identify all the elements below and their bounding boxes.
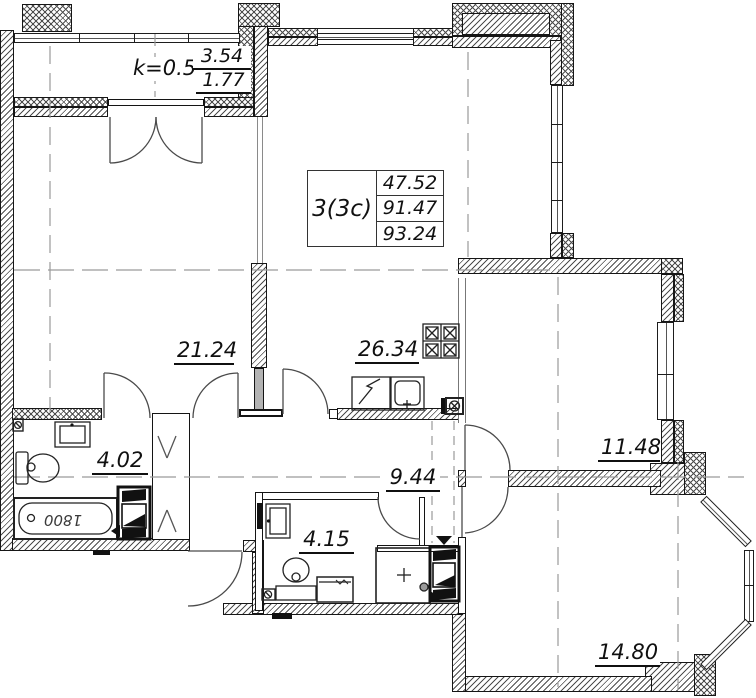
door-jamb	[329, 409, 338, 419]
door-opening-marker	[436, 536, 452, 545]
bedroom-right-door-arc	[465, 425, 510, 470]
wall	[674, 420, 684, 463]
partition-wall	[458, 278, 466, 423]
threshold-mark	[272, 613, 292, 619]
toilet-icon	[276, 558, 316, 600]
wall	[14, 107, 108, 117]
bathroom2-door-arc	[378, 497, 420, 539]
window	[551, 85, 563, 233]
vent-shaft	[152, 413, 190, 540]
duct	[257, 503, 263, 529]
wall	[413, 37, 453, 46]
partition-wall	[377, 545, 463, 552]
vent-grille-icon	[13, 419, 23, 431]
wall	[337, 408, 463, 420]
water-heater-icon	[430, 547, 459, 601]
wall	[14, 97, 108, 107]
wall	[452, 36, 561, 48]
wall	[458, 470, 466, 487]
room-label-hallway: 9.44	[386, 466, 440, 492]
balcony-coefficient-label: k=0.5	[130, 57, 194, 81]
bay-window	[700, 496, 752, 548]
room-label-bedroom-bottom: 14.80	[595, 641, 660, 667]
wall	[561, 3, 574, 86]
room-label-bathroom2: 4.15	[299, 528, 354, 554]
partition-wall	[258, 492, 379, 500]
wall	[254, 26, 268, 117]
bathtub-dimension-label: 1800	[36, 509, 90, 529]
wall	[0, 30, 14, 551]
partition-wall	[458, 537, 466, 614]
apartment-info-table: 3(3c) 47.52 91.47 93.24	[307, 170, 444, 247]
wall	[462, 13, 550, 35]
wall	[268, 37, 318, 46]
door-sill	[108, 99, 204, 106]
wall	[684, 452, 706, 495]
window	[14, 33, 240, 43]
wall	[674, 274, 684, 322]
sink-icon	[55, 422, 90, 447]
partition-wall	[239, 409, 283, 417]
wall	[204, 97, 254, 107]
entrance-door-arc	[188, 551, 242, 606]
room-label-bedroom-right: 11.48	[598, 436, 660, 462]
wall	[562, 233, 574, 258]
window	[657, 322, 674, 420]
balcony-area-total-label: 3.54	[193, 46, 251, 70]
threshold-mark	[93, 550, 110, 555]
wall	[458, 258, 683, 274]
floor-plan: k=0.5 3.54 1.77 3(3c) 47.52 91.47 93.24 …	[0, 0, 756, 698]
column	[254, 368, 264, 410]
washing-machine-icon	[317, 577, 353, 602]
wall	[550, 233, 562, 258]
wall	[508, 470, 661, 487]
toilet-icon	[16, 452, 59, 484]
bathroom-door-arc	[104, 373, 150, 418]
living-area-value: 47.52	[377, 171, 443, 196]
wall	[12, 408, 102, 420]
sink-icon	[266, 504, 290, 538]
shower-icon	[376, 548, 440, 603]
room-label-living: 21.24	[174, 339, 234, 365]
stove-icon	[423, 324, 459, 358]
fridge-icon	[352, 377, 390, 410]
total-area-value: 93.24	[377, 222, 443, 246]
wall	[462, 676, 652, 692]
floor-area-value: 91.47	[377, 196, 443, 221]
water-heater-icon	[111, 487, 150, 539]
bedroom-bottom-door-arc	[462, 487, 508, 537]
room-label-kitchen: 26.34	[355, 338, 419, 364]
kitchen-door-arc	[283, 369, 328, 414]
wall	[452, 612, 466, 692]
partition-wall	[419, 497, 425, 547]
wall	[251, 263, 267, 368]
wall	[661, 274, 674, 322]
balcony-door-arc	[110, 117, 202, 163]
apartment-type-label: 3(3c)	[308, 171, 377, 246]
living-door-arc	[193, 373, 238, 418]
wall	[413, 28, 453, 37]
wall	[268, 28, 318, 37]
bay-window	[700, 619, 752, 671]
wall	[22, 4, 72, 32]
partition-wall	[257, 117, 263, 263]
balcony-area-counted-label: 1.77	[196, 70, 251, 94]
window	[317, 28, 414, 45]
wall	[661, 420, 674, 463]
room-label-bathroom: 4.02	[92, 449, 148, 475]
wall	[238, 3, 280, 27]
sink-icon	[391, 377, 424, 410]
bay-window	[744, 550, 754, 622]
wall	[204, 107, 254, 117]
wall	[550, 40, 562, 85]
wall	[661, 258, 683, 274]
